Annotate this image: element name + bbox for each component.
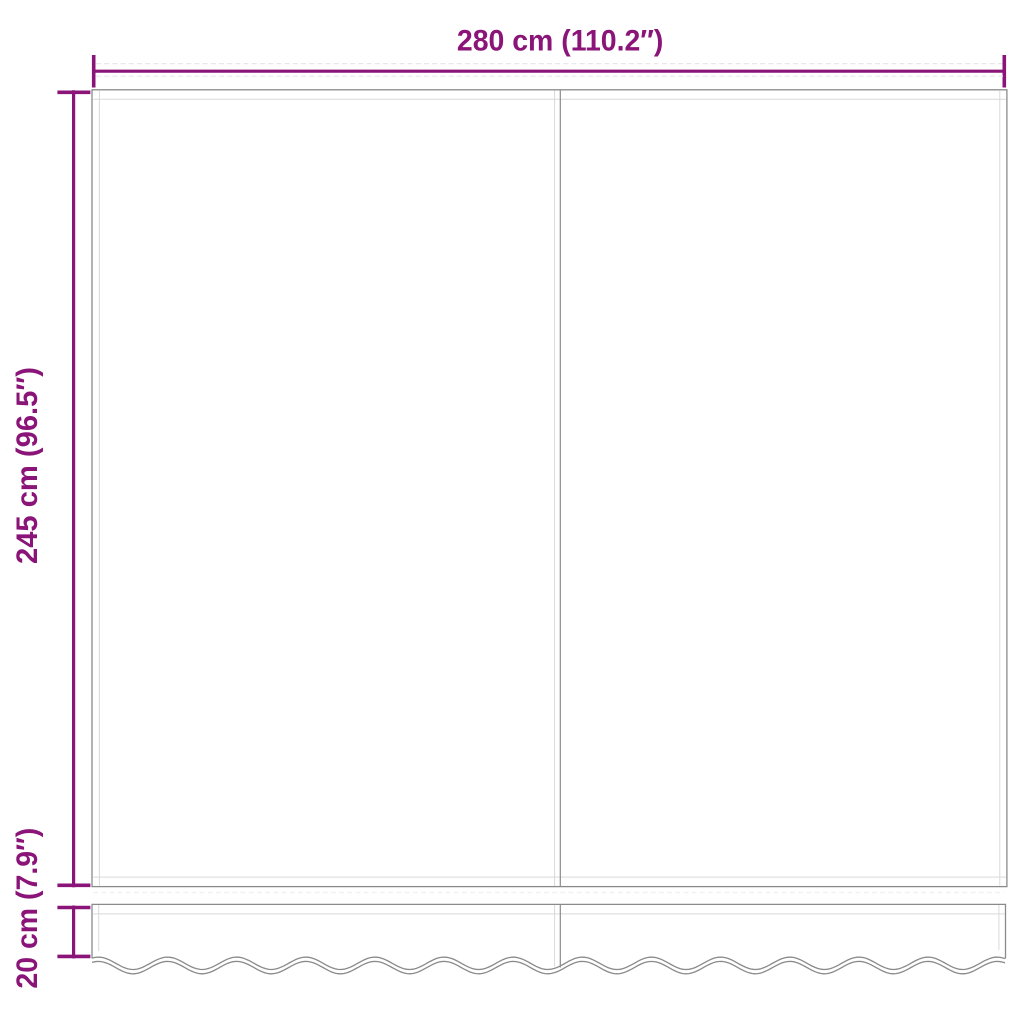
svg-text:280 cm (110.2″): 280 cm (110.2″) [457, 25, 664, 58]
svg-text:245 cm (96.5″): 245 cm (96.5″) [11, 367, 44, 564]
svg-text:20 cm (7.9″): 20 cm (7.9″) [11, 828, 44, 989]
